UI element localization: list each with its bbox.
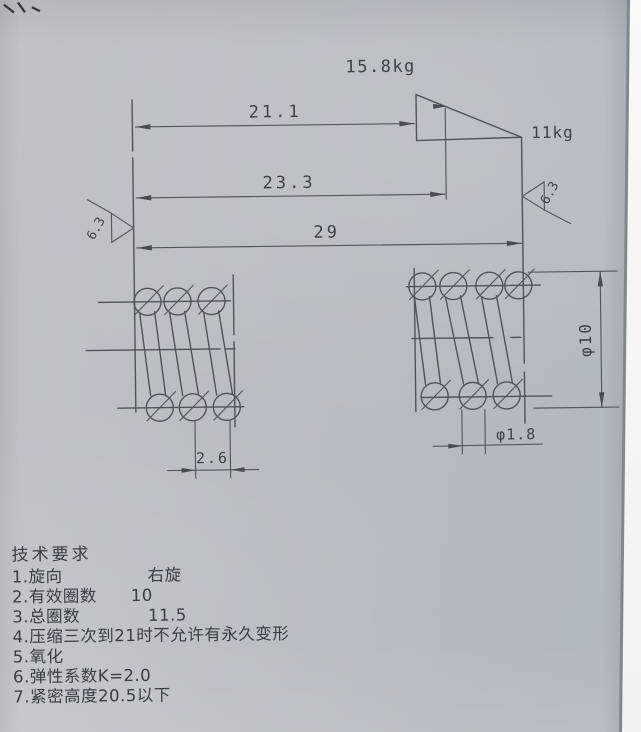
spring-right-view: φ10 φ1.8 [406,266,619,455]
roughness-symbol-right: 6.3 [522,179,571,224]
dim-length-at-upper-load: 21.1 [135,101,414,130]
dim-coil-pitch: 2.6 [167,420,259,478]
upper-load-label: 15.8kg [345,57,416,78]
tech-requirement-item: 1.旋向 右旋 [12,565,182,586]
dim-2-6-label: 2.6 [196,449,229,467]
dim-21-1-label: 21.1 [249,102,302,123]
dim-phi1-8-label: φ1.8 [496,425,536,443]
load-wedge [416,93,522,140]
dim-outer-diameter: φ10 [528,271,619,408]
lower-load-label: 11kg [531,123,574,143]
spring-drawing-svg: 15.8kg 11kg 21.1 23.3 [0,0,641,732]
tech-requirement-item: 3.总圈数 11.5 [12,605,187,626]
tech-requirements-title: 技术要求 [11,545,91,566]
datum-line-left [132,100,136,412]
dim-free-length: 29 [137,220,522,250]
dim-wire-diameter: φ1.8 [433,409,543,454]
dim-29-label: 29 [313,222,340,242]
dim-phi10-label: φ10 [576,322,595,357]
tech-requirement-item: 6.弹性系数K=2.0 [13,666,151,687]
tech-requirement-item: 7.紧密高度20.5以下 [13,686,171,707]
tech-requirements: 技术要求 1.旋向 右旋 2.有效圈数 10 3.总圈数 11.5 4.压缩三次… [11,542,290,706]
tech-requirement-item: 4.压缩三次到21时不允许有永久变形 [12,624,289,646]
dim-23-3-label: 23.3 [262,173,315,194]
scanned-spring-drawing: 15.8kg 11kg 21.1 23.3 [0,0,641,732]
corner-text-fragment [4,2,40,12]
load-diagram: 15.8kg 11kg 21.1 23.3 [82,55,577,429]
spring-left-view: 2.6 [85,275,258,480]
tech-requirement-item: 2.有效圈数 10 [12,586,153,607]
roughness-symbol-left: 6.3 [84,199,134,243]
roughness-left-value: 6.3 [84,215,109,243]
tech-requirement-item: 5.氧化 [13,647,64,667]
